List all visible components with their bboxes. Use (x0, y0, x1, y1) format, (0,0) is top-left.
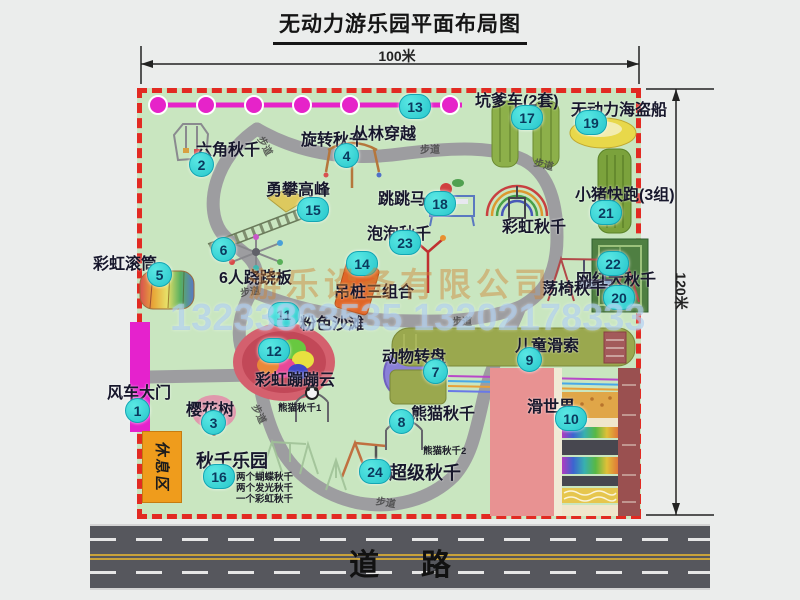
badge-5: 5 (147, 262, 172, 287)
dimension-height-label: 120米 (671, 268, 691, 314)
badge-3: 3 (201, 410, 226, 435)
badge-4: 4 (334, 143, 359, 168)
badge-8: 8 (389, 409, 414, 434)
badge-6: 6 (211, 237, 236, 262)
badge-10: 10 (555, 406, 587, 431)
watermark-phone: 13233863535 13202178333 (170, 297, 646, 340)
badge-21: 21 (590, 200, 622, 225)
road: 道 路 (90, 524, 710, 590)
badge-15: 15 (297, 197, 329, 222)
badge-22: 22 (597, 251, 629, 276)
badge-16: 16 (203, 464, 235, 489)
page-title: 无动力游乐园平面布局图 (273, 8, 527, 45)
badge-9: 9 (517, 347, 542, 372)
badge-12: 12 (258, 338, 290, 363)
label-piggy-run: 小猪快跑(3组) (575, 181, 675, 205)
badge-17: 17 (511, 105, 543, 130)
label-panda-swing-2: 熊猫秋千2 (423, 443, 466, 457)
label-super-swing: 超级秋千 (389, 459, 461, 485)
path-label: 步道 (375, 492, 397, 510)
label-climbing-peak: 勇攀高峰 (266, 176, 330, 200)
badge-24: 24 (359, 459, 391, 484)
rest-area-label: 休息区 (152, 440, 173, 494)
path-label: 步道 (420, 141, 440, 156)
badge-19: 19 (575, 110, 607, 135)
badge-18: 18 (424, 191, 456, 216)
label-swing-note-3: 一个彩虹秋千 (236, 491, 293, 505)
badge-2: 2 (189, 152, 214, 177)
label-rainbow-swing: 彩虹秋千 (502, 213, 566, 237)
badge-23: 23 (389, 230, 421, 255)
badge-1: 1 (125, 398, 150, 423)
badge-7: 7 (423, 359, 448, 384)
park-layout-image: 无动力游乐园平面布局图 100米 120米 (0, 0, 800, 600)
dimension-width-label: 100米 (355, 46, 439, 66)
label-jumping-horse: 跳跳马 (378, 185, 426, 209)
road-label: 道 路 (90, 540, 710, 584)
label-panda-swing: 熊猫秋千 (411, 400, 475, 424)
rest-area: 休息区 (142, 431, 182, 503)
label-jungle-crossing: 丛林穿越 (352, 120, 416, 144)
label-rainbow-cloud: 彩虹蹦蹦云 (255, 366, 335, 390)
label-panda-swing-1: 熊猫秋千1 (278, 400, 321, 414)
badge-13: 13 (399, 94, 431, 119)
